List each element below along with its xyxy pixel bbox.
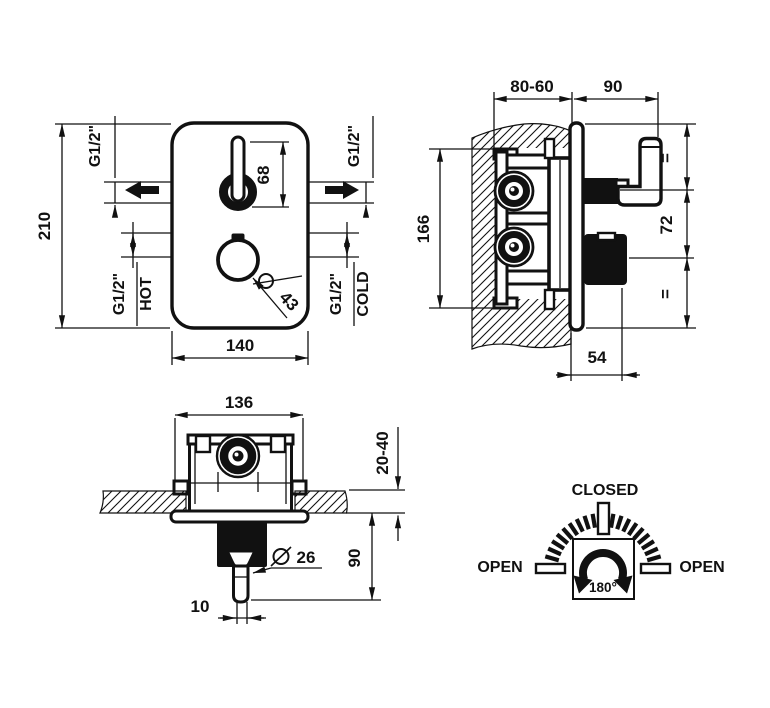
valve-stem [234, 566, 249, 602]
escutcheon-flange [171, 511, 308, 522]
dim-handle-projection: 90 [604, 77, 623, 96]
dim-recess-depth: 80-60 [510, 77, 553, 96]
dim-front-width: 140 [226, 336, 254, 355]
technical-drawing: 210 G1/2" G1/2" HOT G1/2" G1/2" CO [0, 0, 770, 708]
dim-lever-length: 68 [254, 166, 273, 185]
dim-body-height: 166 [414, 215, 433, 243]
handle-position-closed [598, 503, 609, 534]
handle-position-open-right [641, 564, 670, 573]
flow-arrow-right-icon [325, 181, 359, 199]
outlet-left-thread-label: G1/2" [87, 125, 104, 167]
dim-front-height: 210 [35, 212, 54, 240]
knob-side [584, 234, 627, 285]
closed-label: CLOSED [572, 482, 639, 499]
rotation-diagram: CLOSED OPEN OPEN [477, 482, 724, 599]
rotation-angle-label: 180° [589, 580, 617, 595]
handle-position-open-left [536, 564, 565, 573]
lever-stem [232, 137, 244, 201]
flow-arrow-left-icon [125, 181, 159, 199]
dim-knob-projection: 54 [588, 348, 607, 367]
cold-thread-label: G1/2" [328, 273, 345, 315]
equal-mark-top: = [656, 153, 675, 163]
dim-axis-spacing: 72 [657, 216, 676, 235]
hot-label: HOT [138, 277, 155, 311]
drawing-sheet: 210 G1/2" G1/2" HOT G1/2" G1/2" CO [0, 0, 770, 708]
wall-section-left [100, 491, 186, 513]
side-view: 80-60 90 166 = 72 = 54 [414, 77, 696, 381]
open-right-label: OPEN [679, 559, 724, 576]
temperature-knob [218, 240, 258, 280]
dim-wall-thickness: 20-40 [373, 431, 392, 474]
lever-handle-side [618, 139, 661, 206]
lever-hub-side [583, 178, 618, 204]
faceplate-side [570, 123, 583, 330]
dim-stem-projection: 90 [345, 549, 364, 568]
equal-mark-bottom: = [656, 289, 675, 299]
dim-stem-width: 10 [191, 597, 210, 616]
dim-body-width: 136 [225, 393, 253, 412]
outlet-right-thread-label: G1/2" [346, 125, 363, 167]
section-view: 136 26 [100, 393, 405, 624]
cold-label: COLD [355, 271, 372, 316]
front-view: 210 G1/2" G1/2" HOT G1/2" G1/2" CO [35, 116, 374, 365]
hot-thread-label: G1/2" [111, 273, 128, 315]
dim-collar-diameter: 26 [297, 548, 316, 567]
open-left-label: OPEN [477, 559, 522, 576]
